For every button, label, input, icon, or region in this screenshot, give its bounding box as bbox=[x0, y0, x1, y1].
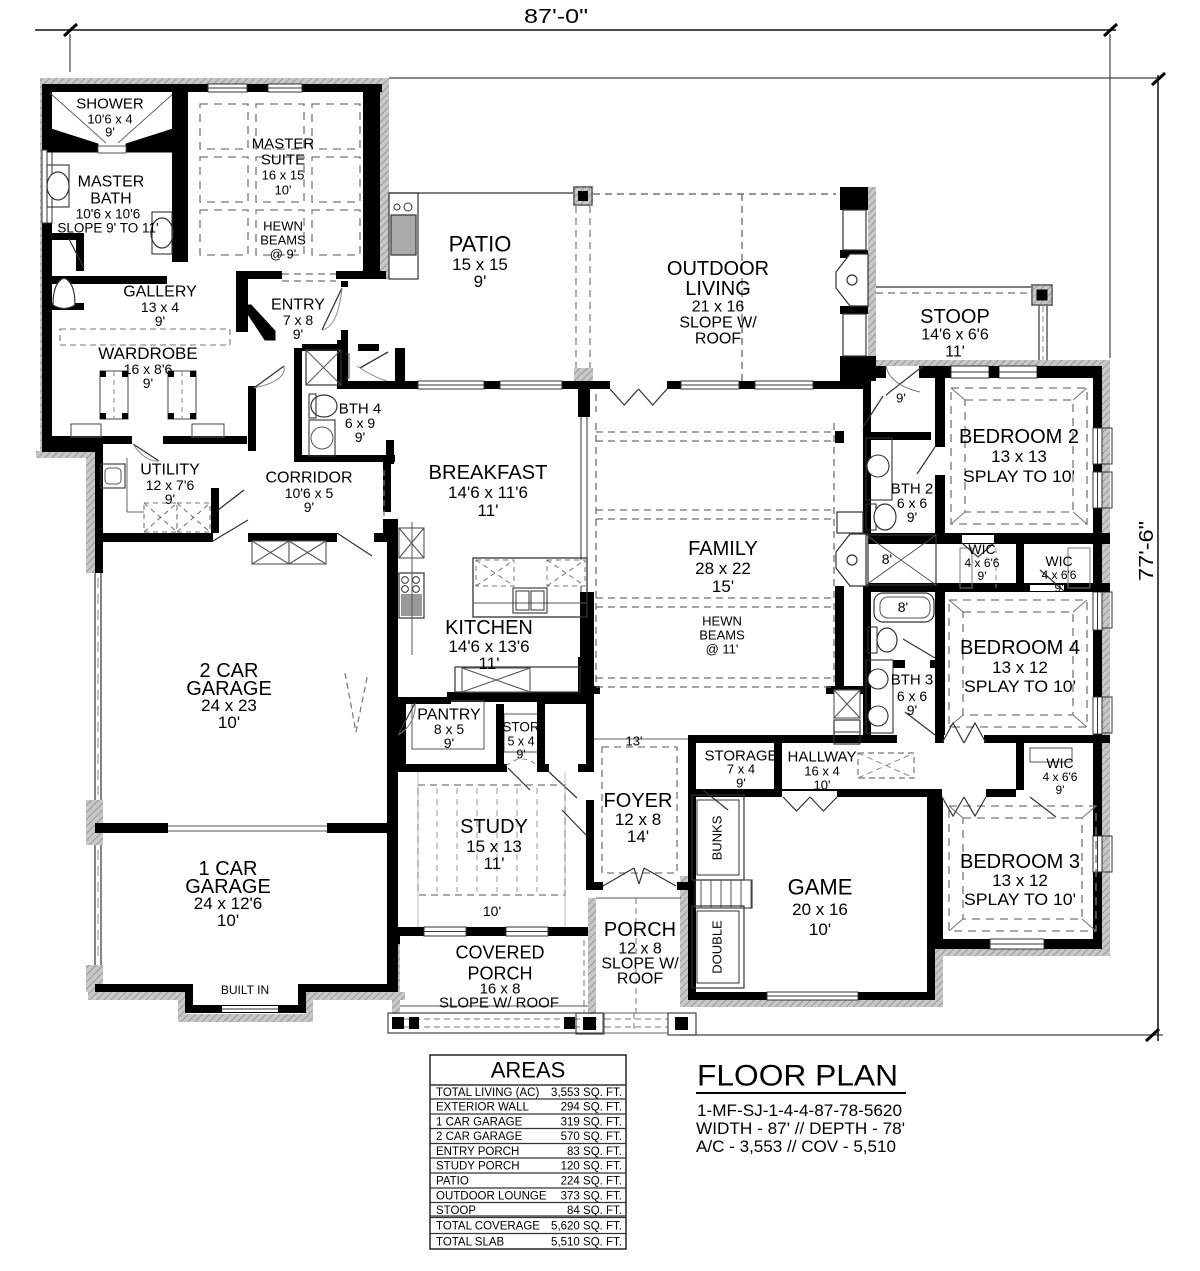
svg-text:PATIO: PATIO bbox=[436, 1176, 469, 1188]
svg-text:STUDY: STUDY bbox=[460, 816, 528, 838]
svg-text:OUTDOOR LOUNGE: OUTDOOR LOUNGE bbox=[436, 1190, 547, 1202]
svg-text:16 x 4: 16 x 4 bbox=[804, 764, 839, 779]
svg-text:SLOPE 9' TO 11': SLOPE 9' TO 11' bbox=[57, 221, 158, 236]
svg-text:15': 15' bbox=[712, 577, 734, 596]
svg-text:SLOPE W/: SLOPE W/ bbox=[679, 315, 757, 332]
svg-text:SHOWER: SHOWER bbox=[76, 95, 144, 112]
svg-text:9': 9' bbox=[293, 326, 303, 342]
svg-text:SPLAY TO 10': SPLAY TO 10' bbox=[964, 890, 1076, 909]
svg-text:10'6 x 10'6: 10'6 x 10'6 bbox=[76, 207, 140, 222]
svg-text:FLOOR PLAN: FLOOR PLAN bbox=[697, 1060, 898, 1093]
svg-text:28 x 22: 28 x 22 bbox=[695, 559, 751, 578]
svg-text:WIC: WIC bbox=[1046, 755, 1073, 771]
svg-text:9': 9' bbox=[444, 735, 454, 751]
svg-text:4 x 6'6: 4 x 6'6 bbox=[1043, 770, 1078, 784]
svg-text:BEDROOM 2: BEDROOM 2 bbox=[959, 426, 1079, 448]
svg-text:HEWN: HEWN bbox=[263, 219, 303, 234]
svg-text:COVERED: COVERED bbox=[455, 942, 544, 962]
svg-text:TOTAL SLAB: TOTAL SLAB bbox=[436, 1236, 505, 1248]
svg-text:STOOP: STOOP bbox=[436, 1205, 476, 1217]
svg-text:14'6 x 11'6: 14'6 x 11'6 bbox=[448, 483, 528, 502]
svg-text:1 CAR GARAGE: 1 CAR GARAGE bbox=[436, 1116, 523, 1128]
svg-text:87'-0": 87'-0" bbox=[524, 6, 588, 28]
svg-text:PATIO: PATIO bbox=[449, 232, 512, 257]
svg-text:5,620 SQ. FT.: 5,620 SQ. FT. bbox=[551, 1221, 622, 1233]
svg-text:9': 9' bbox=[907, 702, 917, 718]
svg-text:10': 10' bbox=[814, 778, 831, 793]
svg-text:TOTAL LIVING (AC): TOTAL LIVING (AC) bbox=[436, 1087, 539, 1099]
svg-text:84 SQ. FT.: 84 SQ. FT. bbox=[567, 1205, 622, 1217]
svg-text:9': 9' bbox=[1056, 783, 1065, 797]
svg-text:@ 9': @ 9' bbox=[270, 247, 297, 262]
svg-text:10': 10' bbox=[275, 183, 292, 198]
svg-text:1-MF-SJ-1-4-4-87-78-5620: 1-MF-SJ-1-4-4-87-78-5620 bbox=[697, 1101, 902, 1120]
svg-text:BEDROOM 3: BEDROOM 3 bbox=[960, 851, 1080, 873]
svg-text:SPLAY TO 10': SPLAY TO 10' bbox=[964, 677, 1076, 696]
svg-text:HEWN: HEWN bbox=[702, 614, 742, 629]
svg-text:294 SQ. FT.: 294 SQ. FT. bbox=[561, 1102, 622, 1114]
svg-text:4 x 6'6: 4 x 6'6 bbox=[1042, 568, 1077, 582]
svg-text:BEAMS: BEAMS bbox=[260, 233, 306, 248]
svg-text:STOR: STOR bbox=[502, 720, 540, 735]
svg-text:@ 11': @ 11' bbox=[706, 642, 739, 657]
svg-text:9': 9' bbox=[474, 272, 487, 291]
svg-text:319 SQ. FT.: 319 SQ. FT. bbox=[561, 1116, 622, 1128]
svg-text:13 x 12: 13 x 12 bbox=[992, 871, 1048, 890]
svg-text:9': 9' bbox=[355, 429, 365, 445]
svg-text:WIDTH - 87' // DEPTH - 78': WIDTH - 87' // DEPTH - 78' bbox=[696, 1119, 905, 1138]
svg-text:MASTER: MASTER bbox=[78, 174, 145, 191]
svg-text:83 SQ. FT.: 83 SQ. FT. bbox=[567, 1146, 622, 1158]
svg-text:9': 9' bbox=[516, 747, 525, 761]
svg-text:BREAKFAST: BREAKFAST bbox=[429, 462, 548, 484]
svg-text:11': 11' bbox=[484, 854, 505, 873]
svg-text:FOYER: FOYER bbox=[604, 790, 673, 812]
svg-text:BUNKS: BUNKS bbox=[710, 815, 725, 860]
svg-text:5 x 4: 5 x 4 bbox=[507, 734, 534, 748]
svg-text:10': 10' bbox=[483, 903, 501, 919]
svg-text:AREAS: AREAS bbox=[491, 1058, 566, 1083]
svg-text:13 x 13: 13 x 13 bbox=[991, 447, 1047, 466]
svg-text:3,553 SQ. FT.: 3,553 SQ. FT. bbox=[551, 1087, 622, 1099]
svg-text:13': 13' bbox=[626, 734, 643, 749]
svg-text:2 CAR GARAGE: 2 CAR GARAGE bbox=[436, 1131, 523, 1143]
svg-text:9': 9' bbox=[165, 491, 175, 507]
svg-text:10': 10' bbox=[218, 713, 240, 732]
svg-text:9': 9' bbox=[304, 499, 314, 515]
svg-text:120 SQ. FT.: 120 SQ. FT. bbox=[561, 1161, 622, 1173]
svg-text:FAMILY: FAMILY bbox=[688, 538, 758, 560]
svg-text:8': 8' bbox=[882, 551, 892, 567]
svg-text:14': 14' bbox=[627, 827, 649, 846]
svg-text:20 x 16: 20 x 16 bbox=[792, 900, 848, 919]
svg-text:21 x 16: 21 x 16 bbox=[692, 299, 745, 316]
svg-text:10': 10' bbox=[809, 920, 831, 939]
svg-text:9': 9' bbox=[155, 313, 165, 329]
svg-text:77'-6": 77'-6" bbox=[1136, 521, 1158, 581]
svg-text:9': 9' bbox=[907, 509, 917, 525]
svg-text:EXTERIOR WALL: EXTERIOR WALL bbox=[436, 1102, 529, 1114]
svg-text:SPLAY TO 10': SPLAY TO 10' bbox=[963, 467, 1075, 486]
svg-text:14'6 x 6'6: 14'6 x 6'6 bbox=[921, 327, 989, 344]
svg-text:WIC: WIC bbox=[968, 541, 995, 557]
svg-text:16 x 15: 16 x 15 bbox=[262, 168, 305, 183]
svg-text:11': 11' bbox=[945, 344, 965, 361]
svg-text:ENTRY PORCH: ENTRY PORCH bbox=[436, 1146, 519, 1158]
svg-text:9': 9' bbox=[105, 125, 115, 140]
svg-text:MASTER: MASTER bbox=[252, 135, 315, 152]
svg-text:11': 11' bbox=[478, 501, 499, 520]
svg-text:A/C - 3,553 // COV - 5,510: A/C - 3,553 // COV - 5,510 bbox=[696, 1137, 896, 1156]
svg-text:PORCH: PORCH bbox=[604, 919, 676, 941]
svg-text:9': 9' bbox=[978, 569, 987, 583]
svg-text:11': 11' bbox=[479, 654, 500, 673]
svg-text:BTH 3: BTH 3 bbox=[891, 671, 934, 688]
svg-text:SUITE: SUITE bbox=[261, 151, 305, 168]
svg-text:10': 10' bbox=[217, 911, 239, 930]
svg-text:BEAMS: BEAMS bbox=[699, 628, 745, 643]
svg-text:8': 8' bbox=[898, 599, 908, 615]
svg-text:GAME: GAME bbox=[788, 875, 853, 900]
svg-text:ROOF: ROOF bbox=[695, 331, 741, 348]
svg-text:ROOF: ROOF bbox=[617, 971, 663, 988]
svg-text:TOTAL COVERAGE: TOTAL COVERAGE bbox=[436, 1221, 540, 1233]
svg-text:373 SQ. FT.: 373 SQ. FT. bbox=[561, 1190, 622, 1202]
svg-text:9': 9' bbox=[1055, 581, 1064, 595]
svg-text:224 SQ. FT.: 224 SQ. FT. bbox=[561, 1176, 622, 1188]
svg-text:KITCHEN: KITCHEN bbox=[445, 617, 533, 639]
svg-text:570 SQ. FT.: 570 SQ. FT. bbox=[561, 1131, 622, 1143]
svg-text:9': 9' bbox=[143, 375, 153, 391]
svg-text:7 x 4: 7 x 4 bbox=[727, 762, 755, 777]
svg-text:13 x 12: 13 x 12 bbox=[992, 658, 1048, 677]
svg-text:STUDY PORCH: STUDY PORCH bbox=[436, 1161, 520, 1173]
svg-text:SLOPE W/ ROOF: SLOPE W/ ROOF bbox=[439, 994, 559, 1011]
svg-text:BUILT IN: BUILT IN bbox=[221, 983, 269, 997]
svg-text:9': 9' bbox=[896, 391, 906, 406]
svg-text:WIC: WIC bbox=[1045, 553, 1072, 569]
svg-text:BEDROOM 4: BEDROOM 4 bbox=[960, 637, 1080, 659]
svg-text:STOOP: STOOP bbox=[920, 306, 990, 328]
svg-text:OUTDOOR: OUTDOOR bbox=[667, 258, 769, 280]
svg-text:4 x 6'6: 4 x 6'6 bbox=[965, 556, 1000, 570]
svg-text:5,510 SQ. FT.: 5,510 SQ. FT. bbox=[551, 1236, 622, 1248]
svg-text:9': 9' bbox=[736, 776, 746, 791]
svg-text:LIVING: LIVING bbox=[685, 278, 751, 300]
svg-text:BATH: BATH bbox=[90, 191, 131, 208]
svg-text:DOUBLE: DOUBLE bbox=[710, 920, 725, 974]
